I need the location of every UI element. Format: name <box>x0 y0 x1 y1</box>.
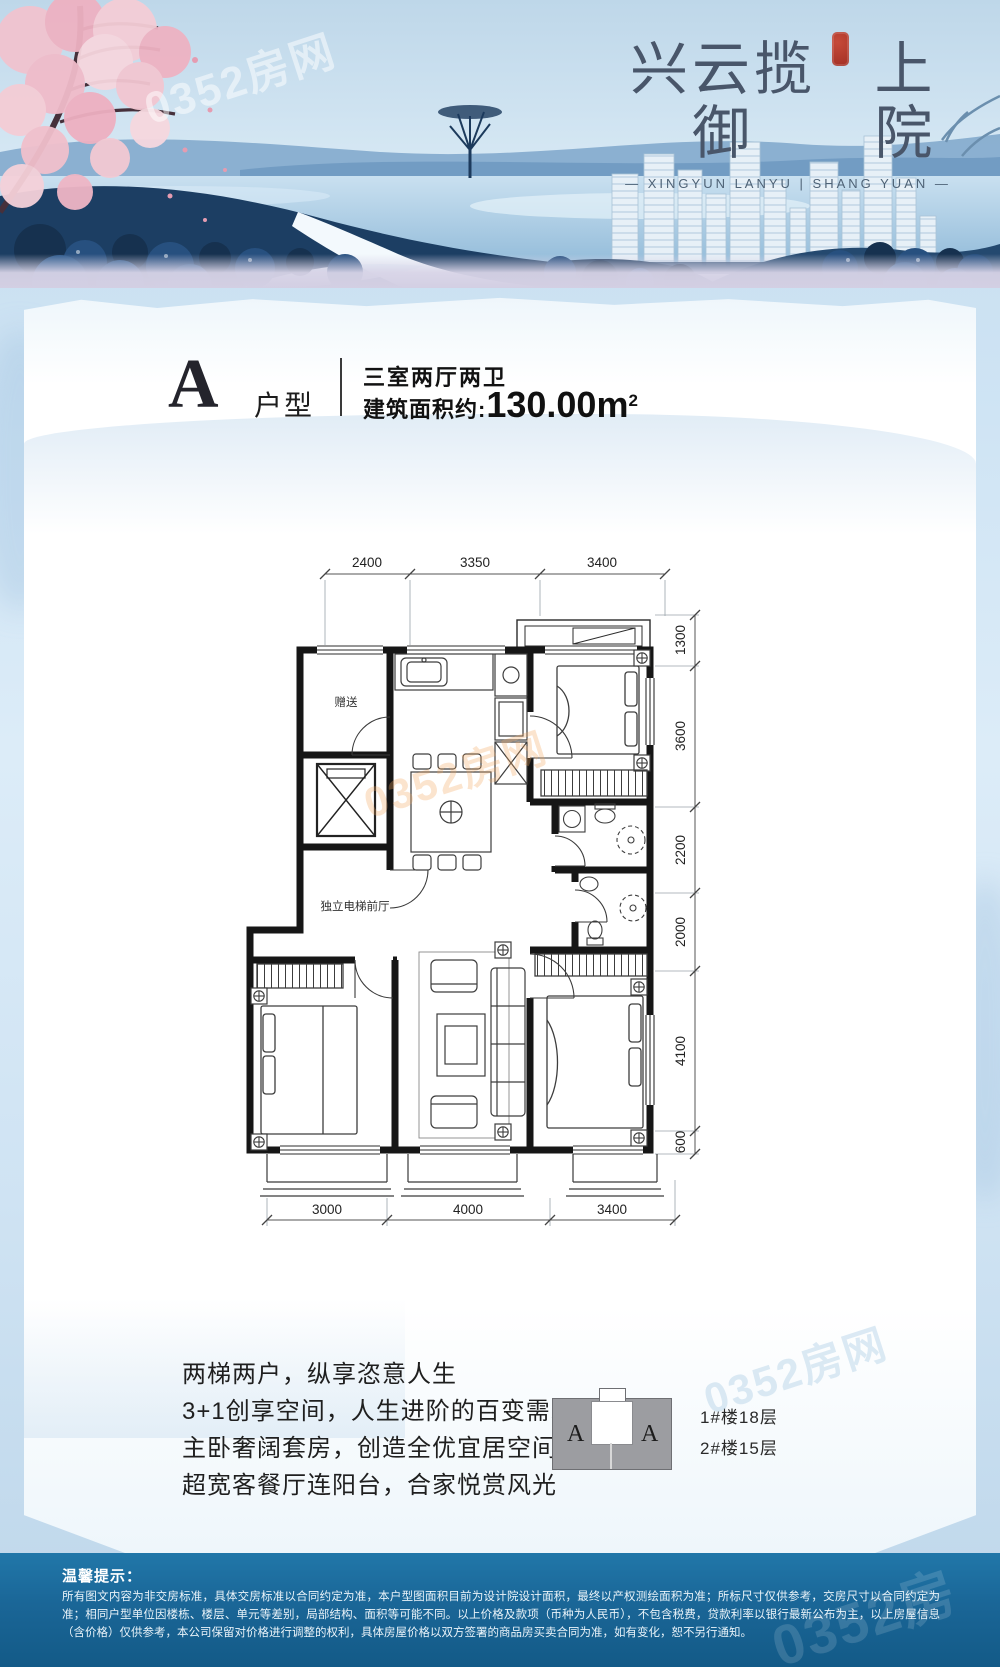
disclaimer-band: 温馨提示： 所有图文内容为非交房标准，具体交房标准以合同约定为准，本户型图面积目… <box>0 1553 1000 1667</box>
fog-band <box>0 254 1000 288</box>
building-key-unit-left: A <box>567 1421 584 1448</box>
logo-text-main: 兴云揽御 <box>618 38 828 166</box>
logo-text-suffix: 上院 <box>853 38 958 166</box>
dim-label: 3350 <box>460 555 490 570</box>
dim-label: 3000 <box>312 1202 342 1217</box>
unit-type-label: 户型 <box>254 384 314 424</box>
hero-illustration: 兴云揽御上院 — XINGYUN LANYU | SHANG YUAN — 03… <box>0 0 1000 288</box>
bathroom-2 <box>580 877 646 945</box>
area-superscript: 2 <box>628 391 637 411</box>
elevator-icon <box>317 764 375 836</box>
watercolor-wash <box>24 414 976 534</box>
building-key-floors: 1#楼18层 2#楼15层 <box>700 1408 778 1470</box>
dim-label: 3400 <box>597 1202 627 1217</box>
building-key-unit-right: A <box>641 1421 658 1448</box>
logo-subtitle: — XINGYUN LANYU | SHANG YUAN — <box>618 176 958 191</box>
living-room <box>419 942 525 1140</box>
selling-point: 超宽客餐厅连阳台，合家悦赏风光 <box>182 1467 576 1504</box>
flyer-page: 兴云揽御上院 — XINGYUN LANYU | SHANG YUAN — 03… <box>0 0 1000 1667</box>
dimension-lines <box>262 569 700 1225</box>
building-floors-line: 1#楼18层 <box>700 1408 778 1428</box>
disclaimer-title: 温馨提示： <box>62 1565 142 1586</box>
building-floors-line: 2#楼15层 <box>700 1439 778 1459</box>
building-key-divider <box>610 1443 612 1469</box>
dining-table <box>411 754 491 870</box>
selling-point: 两梯两户，纵享恣意人生 <box>182 1356 576 1393</box>
walls <box>250 647 650 1150</box>
building-key-stairwell <box>591 1401 633 1445</box>
bedroom-master <box>535 954 647 1146</box>
kitchen-counter <box>395 654 527 784</box>
unit-letter: A <box>168 350 219 420</box>
logo: 兴云揽御上院 — XINGYUN LANYU | SHANG YUAN — <box>618 38 958 191</box>
dim-label: 600 <box>673 1131 688 1154</box>
dim-label: 4000 <box>453 1202 483 1217</box>
bathroom-1 <box>559 804 645 854</box>
dim-label: 3600 <box>673 721 688 751</box>
balconies <box>260 1154 664 1196</box>
logo-seal-icon <box>832 32 849 66</box>
dim-label: 1300 <box>673 625 688 655</box>
dim-label: 2400 <box>352 555 382 570</box>
building-key-diagram: A A <box>552 1398 672 1470</box>
floor-plan: 2400 3350 3400 1300 3600 2200 2000 4100 … <box>205 540 715 1255</box>
bedroom-secondary <box>541 650 650 796</box>
disclaimer-body: 所有图文内容为非交房标准，具体交房标准以合同约定为准，本户型图面积目前为设计院设… <box>62 1589 940 1642</box>
divider <box>340 358 342 416</box>
area-value: 130.00m <box>486 384 628 426</box>
selling-point: 3+1创享空间，人生进阶的百变需求 <box>182 1393 576 1430</box>
dim-label: 2000 <box>673 917 688 947</box>
unit-area: 建筑面积约:130.00m2 <box>363 384 638 426</box>
selling-points: 两梯两户，纵享恣意人生 3+1创享空间，人生进阶的百变需求 主卧奢阔套房，创造全… <box>182 1356 576 1504</box>
dim-label: 3400 <box>587 555 617 570</box>
dim-label: 4100 <box>673 1036 688 1066</box>
room-label-gift: 赠送 <box>335 695 358 709</box>
bedroom-2 <box>251 964 357 1150</box>
dim-label: 2200 <box>673 835 688 865</box>
area-label: 建筑面积约: <box>363 392 486 424</box>
selling-point: 主卧奢阔套房，创造全优宜居空间 <box>182 1430 576 1467</box>
room-label-elevator-lobby: 独立电梯前厅 <box>321 899 390 913</box>
